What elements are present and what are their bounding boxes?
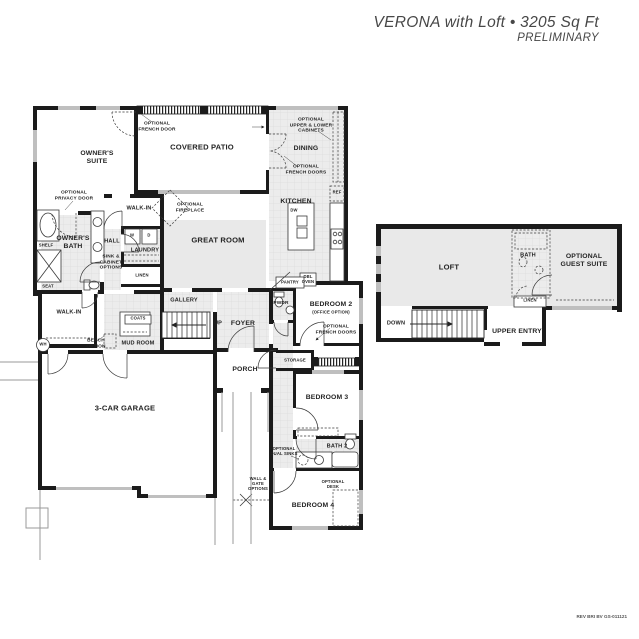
room-label-storage: STORAGE	[284, 359, 306, 364]
appliance-label-dbl-oven: DBL OVEN	[302, 275, 314, 285]
note-seat: SEAT	[42, 285, 53, 290]
room-label-kitchen: KITCHEN	[280, 198, 311, 206]
note-optional-privacy-door: OPTIONAL PRIVACY DOOR	[55, 190, 93, 201]
room-label-bedroom3: BEDROOM 3	[306, 394, 349, 402]
room-label-hall: HALL	[104, 239, 120, 246]
room-label-garage: 3-CAR GARAGE	[95, 405, 155, 414]
stairs-loft	[410, 310, 484, 338]
note-optional-french-doors-dining: OPTIONAL FRENCH DOORS	[286, 164, 327, 175]
stairs-main	[162, 312, 210, 338]
room-label-optional-guest-suite: OPTIONAL GUEST SUITE	[561, 253, 608, 269]
note-bench-option: BENCH OPTION	[86, 338, 105, 349]
appliance-label-dw: DW	[290, 209, 297, 214]
room-label-mud-room: MUD ROOM	[122, 341, 155, 348]
title-block: VERONA with Loft • 3205 Sq Ft PRELIMINAR…	[374, 13, 599, 46]
note-office-option: (OFFICE OPTION)	[312, 311, 350, 316]
room-label-linen-main: LINEN	[135, 274, 148, 279]
note-optional-french-doors-bedroom2: OPTIONAL FRENCH DOORS	[316, 324, 357, 335]
room-label-bedroom4: BEDROOM 4	[292, 502, 335, 510]
note-shelf: SHELF	[39, 244, 53, 249]
room-fills	[41, 110, 617, 468]
note-sink-cabinet-options: SINK & CABINET OPTIONS	[100, 255, 123, 272]
room-label-gallery: GALLERY	[170, 298, 198, 305]
note-optional-dual-sinks: OPTIONAL DUAL SINKS	[270, 447, 297, 457]
room-label-owners-suite: OWNER'S SUITE	[80, 150, 113, 166]
room-label-great-room: GREAT ROOM	[191, 237, 244, 246]
appliance-label-ref: REF	[333, 191, 342, 196]
room-label-upper-entry: UPPER ENTRY	[492, 328, 542, 336]
appliance-label-dryer: D	[147, 234, 150, 239]
room-label-bath-loft: BATH	[520, 253, 536, 260]
note-coats: COATS	[130, 317, 145, 322]
room-label-linen-loft: LINEN	[523, 299, 536, 304]
floor-plan-drawing	[0, 0, 639, 639]
floor-plan-canvas: VERONA with Loft • 3205 Sq Ft PRELIMINAR…	[0, 0, 639, 639]
room-label-loft: LOFT	[439, 264, 459, 273]
room-label-bath2: BATH 2	[327, 444, 348, 451]
equipment-label-wh: WH	[39, 343, 46, 348]
room-label-laundry: LAUNDRY	[131, 248, 159, 255]
room-label-foyer: FOYER	[231, 320, 255, 328]
room-label-covered-patio: COVERED PATIO	[170, 144, 234, 153]
note-optional-french-door: OPTIONAL FRENCH DOOR	[138, 121, 175, 132]
note-optional-upper-lower-cabinets: OPTIONAL UPPER & LOWER CABINETS	[290, 118, 332, 135]
room-label-bedroom2: BEDROOM 2	[310, 301, 353, 309]
note-stairs-up: UP	[214, 321, 222, 328]
plan-title: VERONA with Loft • 3205 Sq Ft	[374, 13, 599, 32]
revision-code: REV BRI BV GS-011121	[576, 615, 627, 620]
note-wall-gate-options: WALL & GATE OPTIONS	[248, 477, 268, 491]
room-label-dining: DINING	[294, 145, 319, 153]
room-label-pantry: PANTRY	[281, 281, 299, 286]
note-optional-fireplace: OPTIONAL FIREPLACE	[176, 202, 205, 213]
room-label-walk-in-owner: WALK-IN	[127, 206, 152, 213]
note-stairs-down: DOWN	[387, 321, 405, 328]
note-optional-desk: OPTIONAL DESK	[322, 480, 345, 490]
plan-subtitle: PRELIMINARY	[374, 32, 599, 46]
room-label-pwdr: PWDR	[273, 301, 288, 307]
appliance-label-washer: W	[130, 234, 134, 239]
room-label-owners-bath: OWNER'S BATH	[56, 235, 89, 251]
room-label-porch: PORCH	[232, 366, 257, 374]
room-label-walk-in-mud: WALK-IN	[57, 310, 82, 317]
